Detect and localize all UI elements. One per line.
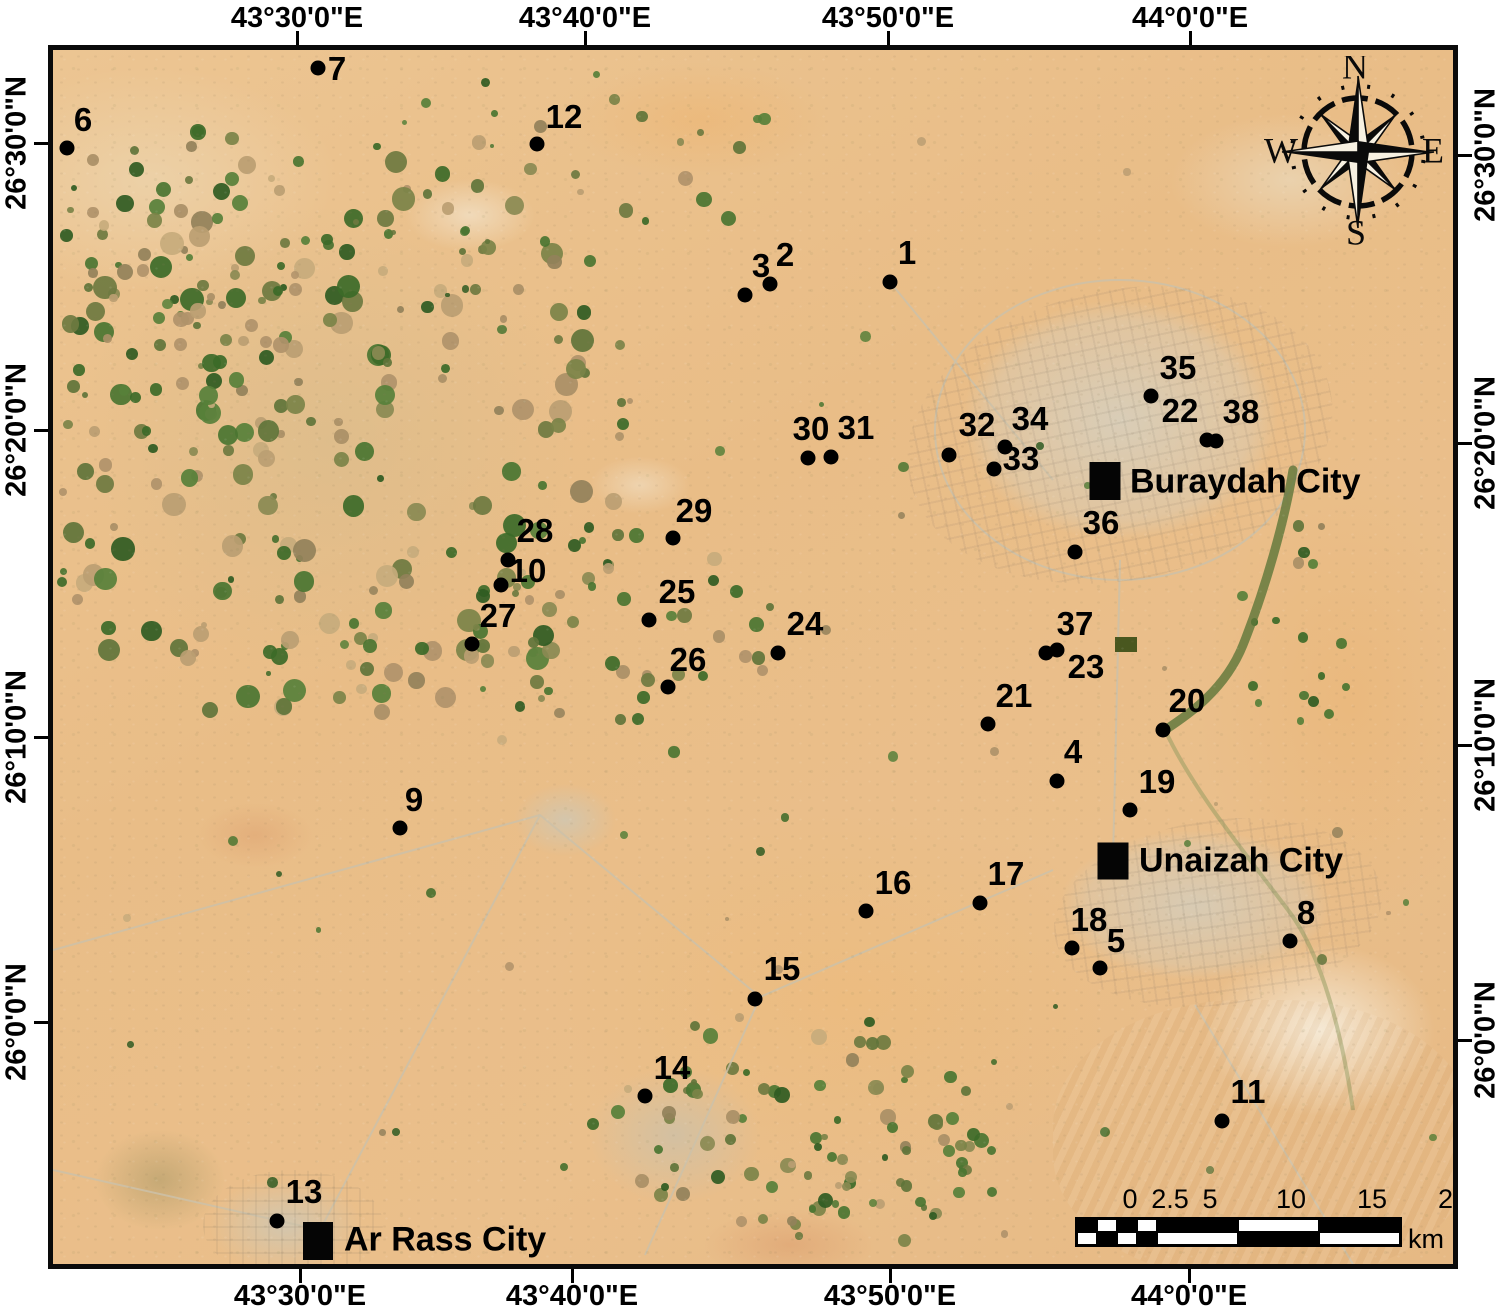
latitude-label-left: 26°10'0"N xyxy=(1,670,34,804)
tick-left xyxy=(34,429,48,432)
scalebar-cell xyxy=(1157,1219,1238,1232)
city-label: Unaizah City xyxy=(1139,842,1343,881)
scalebar-tick-label: 5 xyxy=(1202,1184,1217,1215)
scalebar-cell xyxy=(1319,1219,1400,1232)
scalebar-cell xyxy=(1097,1232,1117,1245)
city-square-marker xyxy=(1098,843,1129,880)
longitude-label-bottom: 44°0'0"E xyxy=(1131,1280,1247,1311)
scalebar-bar xyxy=(1075,1217,1402,1247)
scalebar-cell xyxy=(1077,1232,1097,1245)
compass-s: S xyxy=(1346,212,1366,252)
scalebar-cell xyxy=(1137,1219,1157,1232)
scalebar-cell xyxy=(1319,1232,1400,1245)
compass-rose-icon: NSWE xyxy=(1248,56,1458,252)
scalebar-tick-label: 2.5 xyxy=(1151,1184,1189,1215)
tick-top xyxy=(887,31,890,45)
latitude-label-left: 26°30'0"N xyxy=(1,76,34,210)
tick-left xyxy=(34,1021,48,1024)
scalebar-tick-label: 15 xyxy=(1357,1184,1387,1215)
tick-top xyxy=(584,31,587,45)
longitude-label-bottom: 43°40'0"E xyxy=(506,1280,638,1311)
scalebar-cell xyxy=(1117,1232,1137,1245)
scalebar-cell xyxy=(1238,1232,1319,1245)
tick-left xyxy=(34,736,48,739)
compass-n: N xyxy=(1342,56,1368,86)
city-markers-layer: Buraydah CityUnaizah CityAr Rass City xyxy=(53,50,1453,1264)
tick-top xyxy=(296,31,299,45)
scalebar-cell xyxy=(1117,1219,1137,1232)
scalebar-tick-label: 10 xyxy=(1276,1184,1306,1215)
latitude-label-left: 26°20'0"N xyxy=(1,363,34,497)
scalebar-cell xyxy=(1157,1232,1238,1245)
tick-top xyxy=(1189,31,1192,45)
latitude-label-right: 26°20'0"N xyxy=(1470,376,1500,510)
tick-left xyxy=(34,142,48,145)
latitude-label-right: 26°0'0"N xyxy=(1470,981,1500,1099)
map-frame: 1234567891011121314151617181920212223242… xyxy=(48,45,1458,1269)
longitude-label-bottom: 43°30'0"E xyxy=(234,1280,366,1311)
city-square-marker xyxy=(303,1222,333,1260)
scalebar-cell xyxy=(1137,1232,1157,1245)
scalebar-tick-label: 20 xyxy=(1438,1184,1458,1215)
city-label: Buraydah City xyxy=(1130,463,1361,502)
scalebar-tick-label: 0 xyxy=(1122,1184,1137,1215)
compass-e: E xyxy=(1422,130,1444,170)
latitude-label-right: 26°10'0"N xyxy=(1470,678,1500,812)
longitude-label-bottom: 43°50'0"E xyxy=(824,1280,956,1311)
latitude-label-right: 26°30'0"N xyxy=(1470,88,1500,222)
latitude-label-left: 26°0'0"N xyxy=(1,963,34,1081)
scalebar-cell xyxy=(1238,1219,1319,1232)
compass-w: W xyxy=(1264,130,1298,170)
city-label: Ar Rass City xyxy=(344,1221,546,1260)
map-figure: 1234567891011121314151617181920212223242… xyxy=(0,0,1500,1311)
scalebar-cell xyxy=(1097,1219,1117,1232)
scalebar-unit: km xyxy=(1408,1224,1444,1255)
city-square-marker xyxy=(1090,462,1121,500)
scalebar-cell xyxy=(1077,1219,1097,1232)
